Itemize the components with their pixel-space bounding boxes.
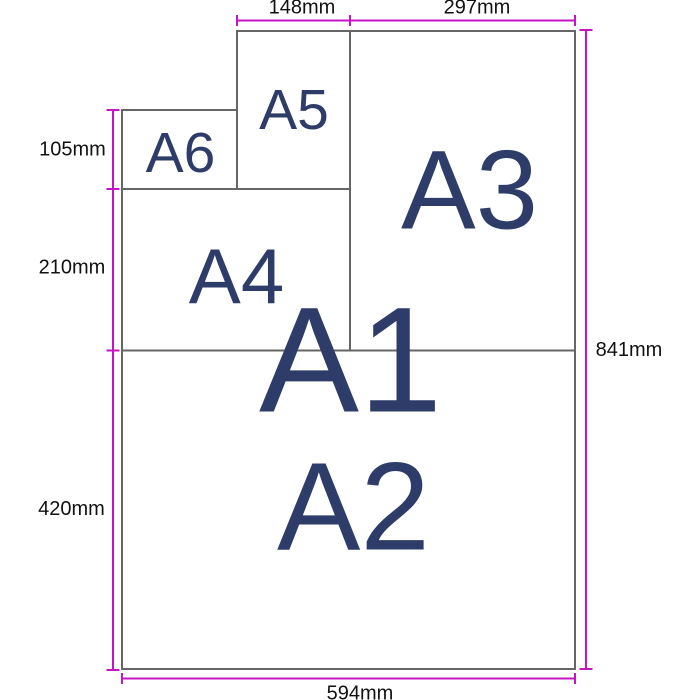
svg-text:1: 1: [359, 276, 442, 444]
svg-text:A5: A5: [259, 78, 329, 142]
svg-text:A6: A6: [146, 121, 216, 185]
svg-text:A2: A2: [277, 438, 430, 577]
svg-text:297mm: 297mm: [444, 0, 511, 19]
svg-text:594mm: 594mm: [327, 683, 394, 700]
svg-text:210mm: 210mm: [39, 257, 106, 279]
svg-text:841mm: 841mm: [596, 339, 663, 361]
svg-text:A3: A3: [401, 128, 538, 253]
svg-text:A: A: [259, 276, 359, 444]
svg-text:105mm: 105mm: [39, 139, 106, 161]
svg-text:420mm: 420mm: [38, 498, 105, 520]
svg-text:148mm: 148mm: [269, 0, 336, 19]
